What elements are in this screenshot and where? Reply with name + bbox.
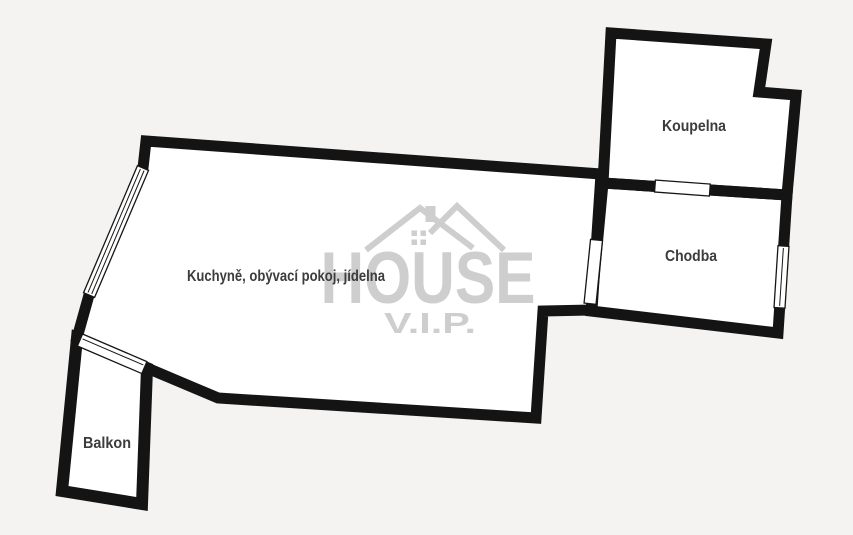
- room-label-balcony: Balkon: [83, 435, 131, 452]
- room-label-living: Kuchyně, obývací pokoj, jídelna: [187, 268, 385, 285]
- watermark-suffix-text: V.I.P.: [384, 308, 476, 340]
- window-pane: [412, 231, 418, 237]
- room-label-hallway: Chodba: [665, 248, 717, 265]
- window-pane: [421, 231, 427, 237]
- room-label-bathroom: Koupelna: [662, 118, 726, 135]
- watermark-chimney-icon: [426, 206, 436, 222]
- floor-plan-image: HOUSE V.I.P.: [0, 0, 853, 535]
- floor-plan-svg: HOUSE V.I.P.: [0, 0, 853, 535]
